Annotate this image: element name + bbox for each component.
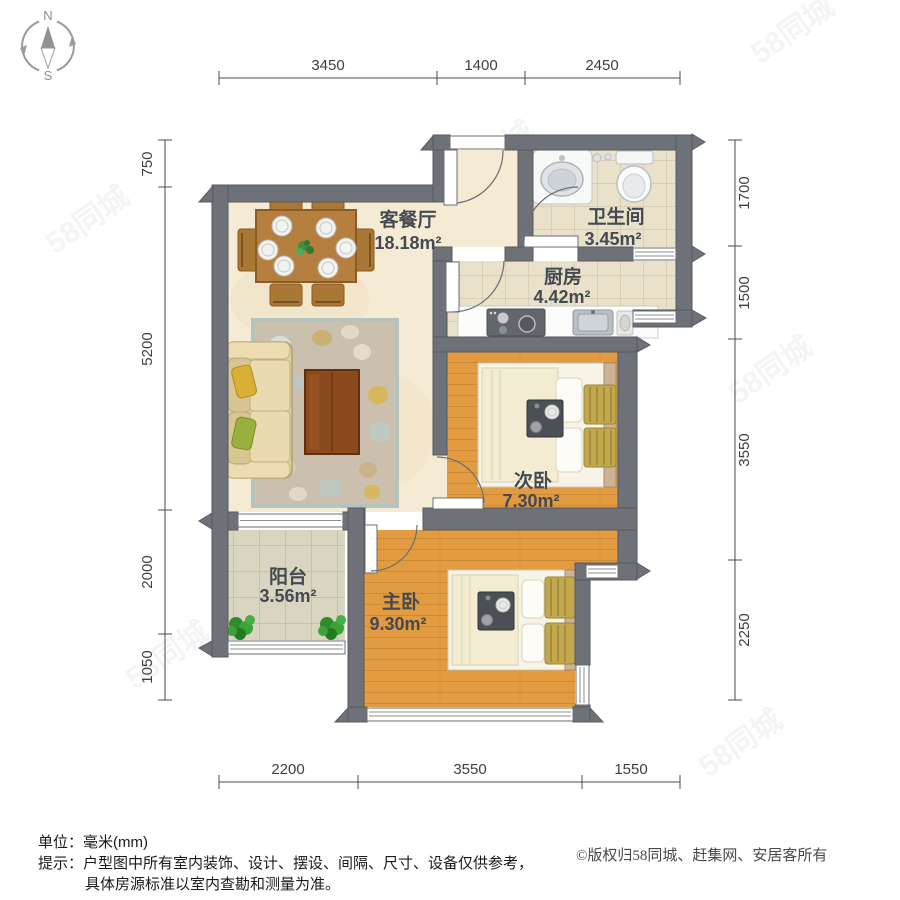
bedroom-second-area: 7.30m² xyxy=(502,491,559,511)
bed-second xyxy=(478,363,616,487)
tip-label: 提示： xyxy=(38,855,83,872)
watermark-text: 58同城 xyxy=(693,703,788,784)
stove xyxy=(487,309,545,336)
unit-label: 单位： xyxy=(38,834,83,851)
bathroom-door-leaf xyxy=(524,236,578,247)
bedroom-master-door-leaf xyxy=(365,525,377,573)
kitchen-right-window xyxy=(633,311,676,323)
copyright-text: ©版权归58同城、赶集网、安居客所有 xyxy=(576,846,827,867)
tip-text-2: 具体房源标准以室内查勘和测量为准。 xyxy=(85,876,340,893)
wall-corner-arrow xyxy=(199,186,213,202)
sofa xyxy=(226,342,292,478)
kitchen-sink xyxy=(573,310,633,335)
kitchen-label: 厨房 xyxy=(544,265,582,288)
living-room-label: 客餐厅 xyxy=(379,208,436,231)
coffee-table xyxy=(305,370,359,454)
bedroom-second-door-leaf xyxy=(433,498,483,509)
compass-arrow-right xyxy=(69,36,76,47)
bathroom-label: 卫生间 xyxy=(587,205,644,228)
bedroom-second-label: 次卧 xyxy=(514,469,552,492)
dim-left-4: 1050 xyxy=(139,650,156,683)
bedroom-master-area: 9.30m² xyxy=(369,614,426,634)
dim-right-1: 1700 xyxy=(736,176,753,209)
watermark-text: 58同城 xyxy=(745,0,840,71)
dim-left-2: 5200 xyxy=(139,332,156,365)
wall-corner-arrow xyxy=(637,563,650,579)
compass-south-label: S xyxy=(44,68,53,83)
bed-pillow xyxy=(522,624,544,662)
watermark-text: 58同城 xyxy=(120,615,215,696)
unit-value: 毫米(mm) xyxy=(83,834,148,851)
tip-text-1: 户型图中所有室内装饰、设计、摆设、间隔、尺寸、设备仅供参考， xyxy=(83,855,533,872)
bed-headboard xyxy=(604,363,616,487)
dim-bottom-1: 2200 xyxy=(271,761,304,778)
wall-corner-arrow xyxy=(637,337,650,352)
wall-corner-arrow xyxy=(335,708,348,722)
entry-door-leaf xyxy=(444,150,457,205)
compass-needle-south xyxy=(41,48,55,68)
dim-right-2: 1500 xyxy=(736,276,753,309)
kitchen-door-leaf xyxy=(446,262,459,312)
compass-needle-north xyxy=(41,26,55,48)
watermark-text: 58同城 xyxy=(723,330,818,411)
bed-tray xyxy=(527,400,563,437)
compass: N S xyxy=(20,8,76,83)
compass-arrow-left xyxy=(20,45,27,56)
master-right-window xyxy=(576,665,589,705)
compass-north-label: N xyxy=(43,8,52,23)
balcony-rail-window xyxy=(228,641,345,654)
kitchen-area: 4.42m² xyxy=(533,287,590,307)
bed-master xyxy=(448,570,577,670)
dim-bottom-2: 3550 xyxy=(453,761,486,778)
balcony-area: 3.56m² xyxy=(259,586,316,606)
tip-note-line1: 提示：户型图中所有室内装饰、设计、摆设、间隔、尺寸、设备仅供参考， xyxy=(38,853,533,874)
bed-pillow xyxy=(522,580,544,618)
wall-corner-arrow xyxy=(421,136,433,150)
living-room-area: 18.18m² xyxy=(374,233,441,253)
dim-top-3: 2450 xyxy=(585,57,618,74)
bathroom-area: 3.45m² xyxy=(584,229,641,249)
kitchen-counter xyxy=(458,306,658,338)
wall-corner-arrow xyxy=(692,310,706,326)
bedroom-master-label: 主卧 xyxy=(382,591,420,613)
kitchen-right-window xyxy=(633,248,676,260)
dim-right-4: 2250 xyxy=(736,613,753,646)
master-bottom-window xyxy=(367,708,573,721)
toilet xyxy=(616,151,653,202)
unit-note: 单位：毫米(mm) xyxy=(38,832,148,853)
step-window xyxy=(586,565,618,578)
bed-tray xyxy=(478,592,514,630)
wall-corner-arrow xyxy=(590,708,603,722)
dim-left-1: 750 xyxy=(139,151,156,176)
floorplan-canvas: 58同城 58同城 58同城 58同城 58同城 58同城 58同城 58同城 … xyxy=(0,0,900,900)
dim-bottom-3: 1550 xyxy=(614,761,647,778)
dim-top-2: 1400 xyxy=(464,57,497,74)
dim-top-1: 3450 xyxy=(311,57,344,74)
dim-left-3: 2000 xyxy=(139,555,156,588)
entry-opening xyxy=(450,136,505,149)
wall-corner-arrow xyxy=(692,134,705,150)
tip-note-line2: 具体房源标准以室内查勘和测量为准。 xyxy=(85,874,340,895)
floorplan-page: 58同城 58同城 58同城 58同城 58同城 58同城 58同城 58同城 … xyxy=(0,0,900,900)
dim-right-3: 3550 xyxy=(736,433,753,466)
wall-corner-arrow xyxy=(199,513,212,529)
balcony-label: 阳台 xyxy=(269,565,307,588)
watermark-text: 58同城 xyxy=(40,180,135,261)
wall-corner-arrow xyxy=(692,246,705,262)
